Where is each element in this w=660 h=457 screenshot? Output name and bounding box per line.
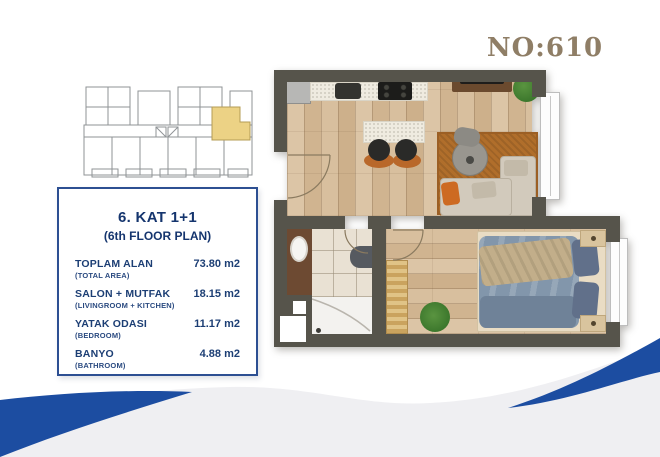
- area-value: 18.15 m2: [194, 288, 240, 300]
- floorplan-page: { "header": { "plan_number": "NO:610" },…: [0, 0, 660, 457]
- decorative-waves: [0, 327, 660, 457]
- area-row-total: TOPLAM ALAN 73.80 m2 (TOTAL AREA): [75, 258, 240, 280]
- area-sublabel: (LIVINGROOM + KITCHEN): [75, 301, 240, 310]
- wall-interior-a: [287, 216, 345, 229]
- wall-interior-c: [424, 216, 532, 229]
- floor-title: 6. KAT 1+1: [59, 209, 256, 226]
- apartment-floor-plan: [274, 70, 620, 347]
- wall-left-upper: [274, 70, 287, 152]
- shaft-small: [293, 301, 306, 314]
- wall-living-right-upper: [532, 70, 546, 97]
- plan-number: NO:610: [460, 33, 630, 63]
- wall-top: [274, 70, 546, 82]
- wall-bedroom-right-upper: [606, 216, 620, 242]
- highlighted-unit: [212, 107, 250, 140]
- building-key-plan: [78, 83, 258, 181]
- floor-subtitle: (6th FLOOR PLAN): [59, 229, 256, 243]
- area-label: TOPLAM ALAN: [75, 258, 153, 270]
- area-row-livingroom: SALON + MUTFAK 18.15 m2 (LIVINGROOM + KI…: [75, 288, 240, 310]
- area-label: SALON + MUTFAK: [75, 288, 170, 300]
- area-sublabel: (TOTAL AREA): [75, 271, 240, 280]
- wall-bathroom-right: [372, 216, 386, 334]
- door-swing-arcs: [274, 70, 620, 347]
- area-value: 73.80 m2: [194, 258, 240, 270]
